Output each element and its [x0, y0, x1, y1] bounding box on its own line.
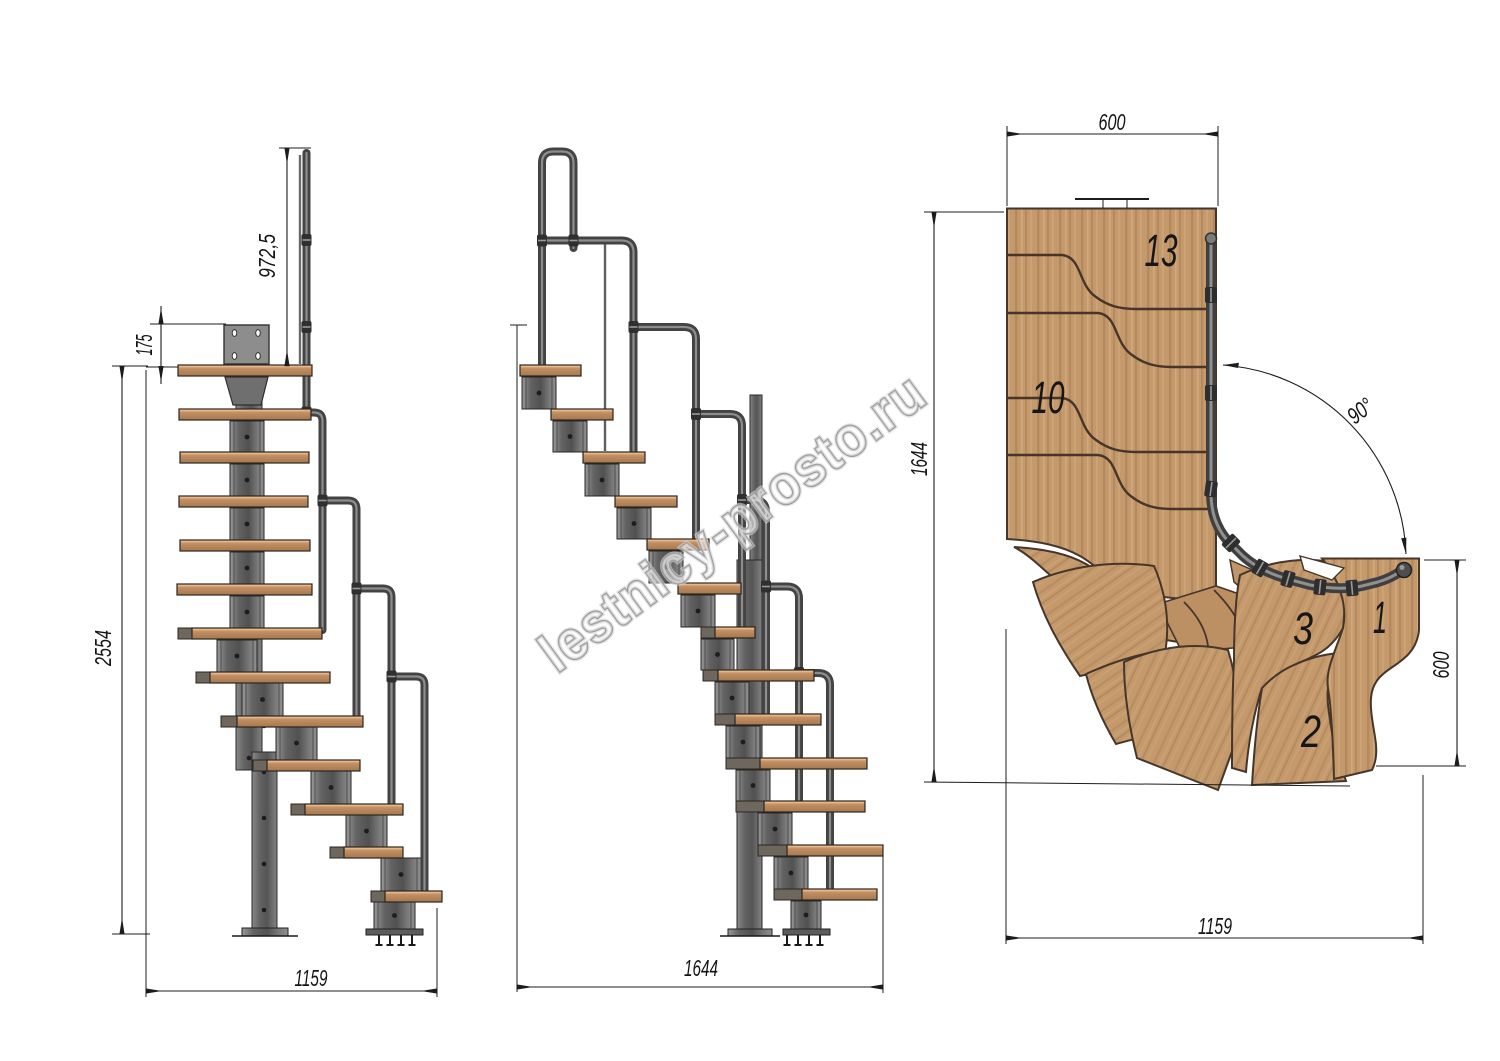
svg-text:2: 2: [1300, 706, 1321, 757]
svg-text:10: 10: [1032, 372, 1065, 423]
svg-text:600: 600: [1428, 651, 1454, 678]
svg-text:1: 1: [1373, 592, 1387, 643]
svg-text:600: 600: [1099, 109, 1126, 135]
svg-text:1644: 1644: [684, 955, 718, 981]
svg-text:3: 3: [1293, 603, 1313, 654]
svg-text:972,5: 972,5: [254, 234, 280, 278]
svg-text:13: 13: [1145, 225, 1178, 276]
svg-text:1159: 1159: [1198, 913, 1232, 939]
svg-text:1644: 1644: [906, 442, 932, 476]
svg-text:175: 175: [131, 334, 157, 355]
svg-text:2554: 2554: [90, 630, 116, 667]
svg-text:1159: 1159: [295, 965, 328, 991]
